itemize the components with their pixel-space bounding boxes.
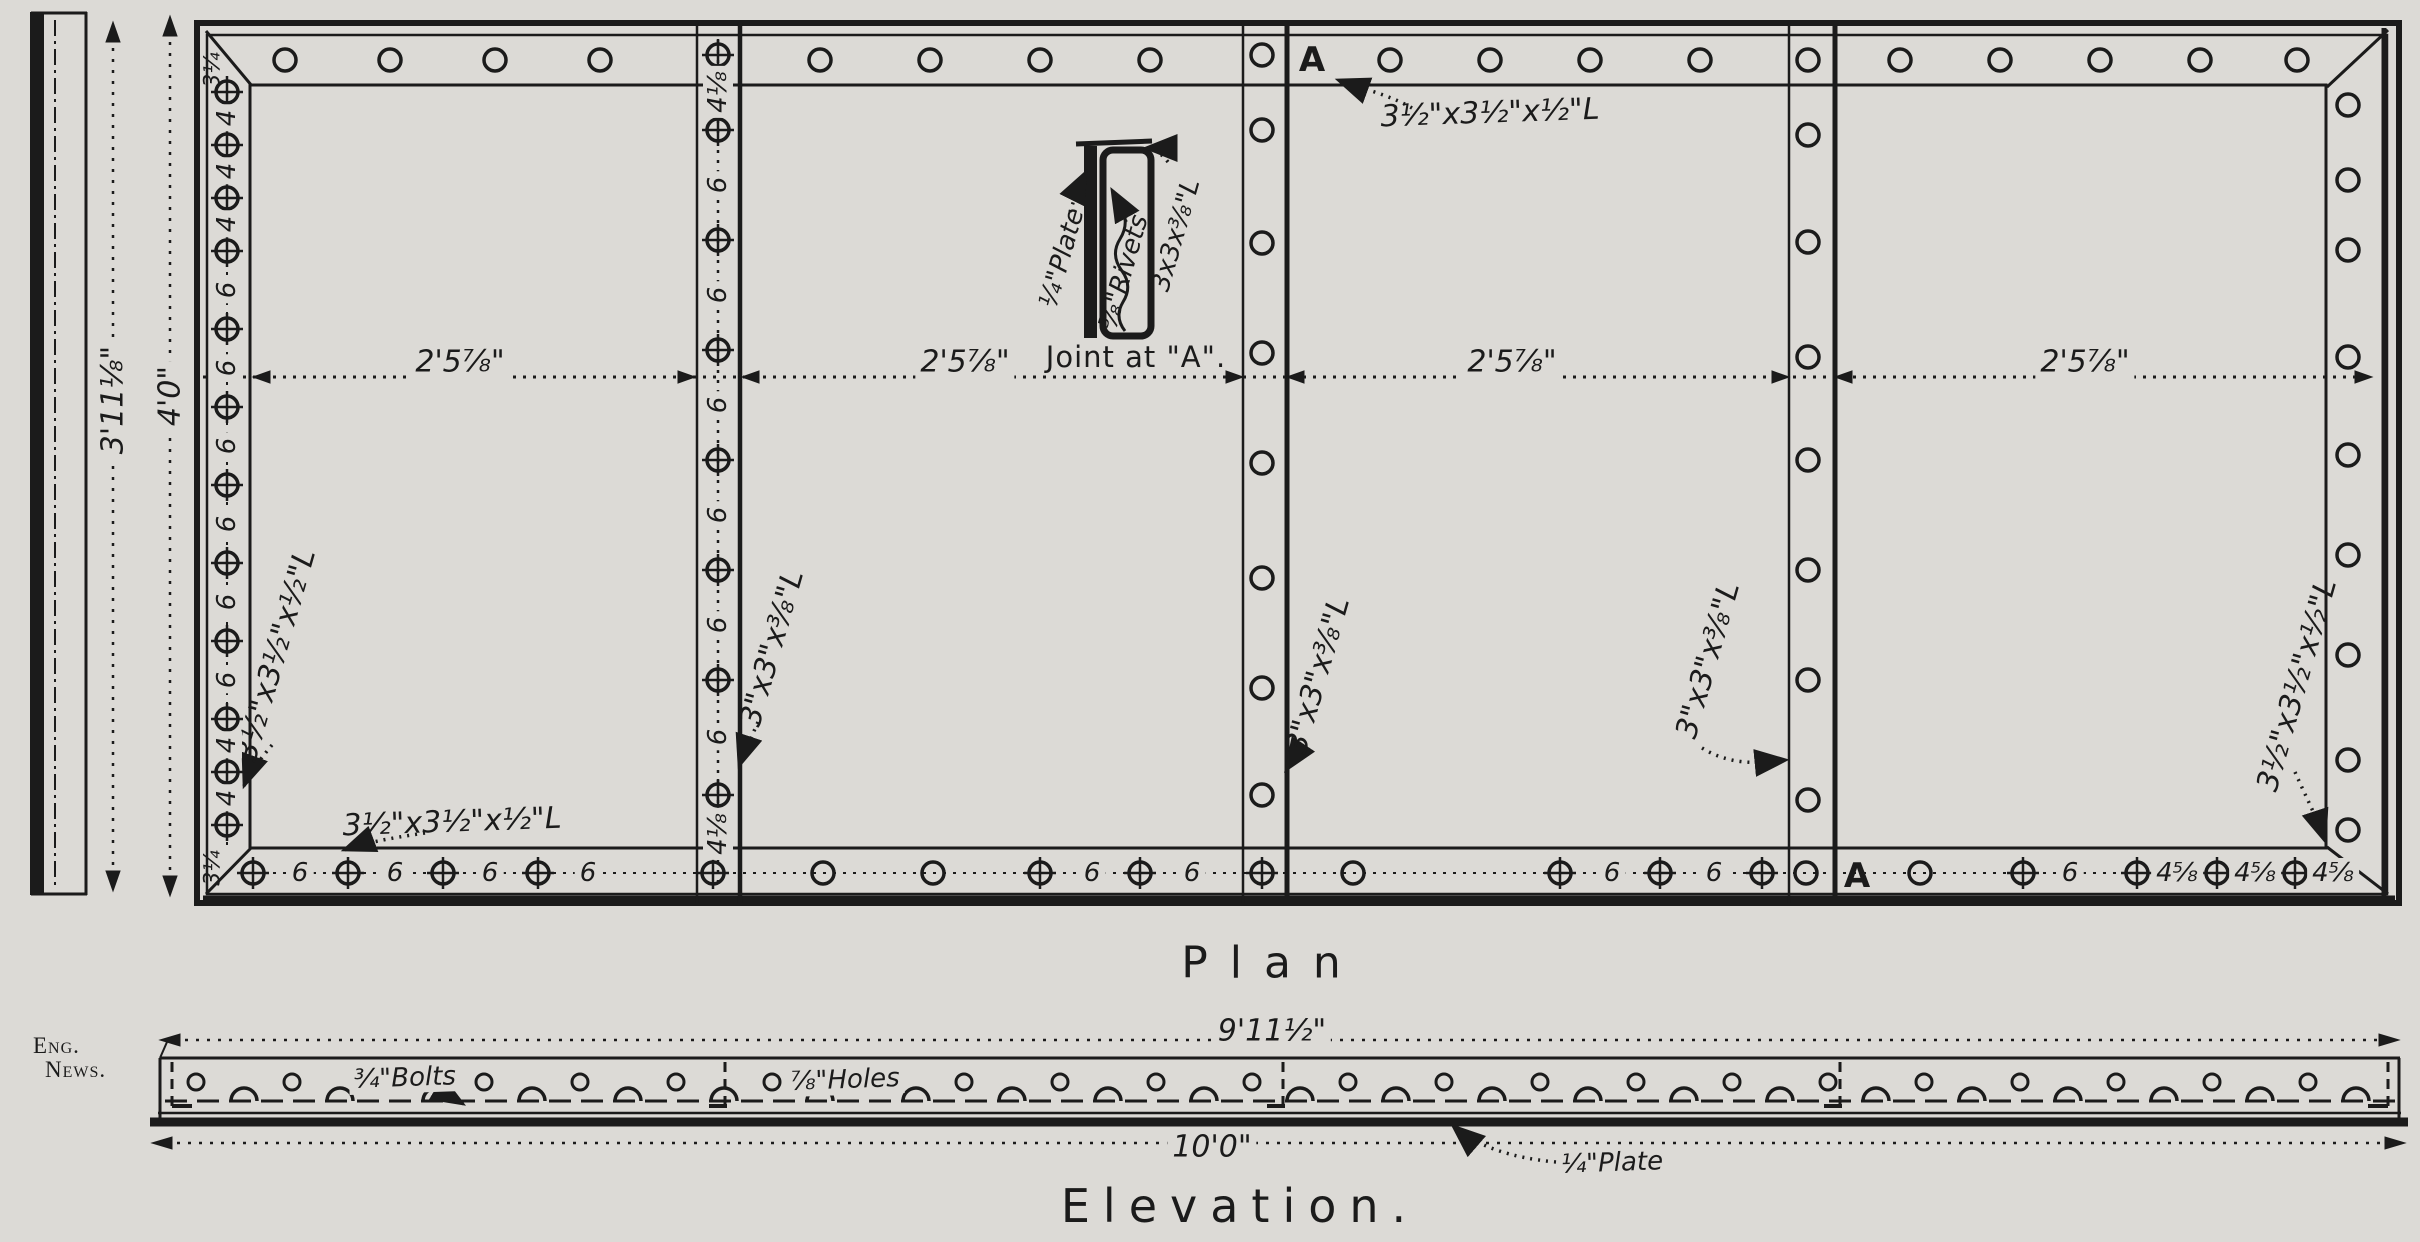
rivet-hole <box>2286 49 2308 71</box>
bolt-head-arc <box>1191 1088 1217 1101</box>
rivet-hole <box>589 49 611 71</box>
height-dimension-lines <box>106 16 177 896</box>
rivet-hole <box>919 49 941 71</box>
rivet-hole <box>274 49 296 71</box>
bolt-head-arc <box>1479 1088 1505 1101</box>
plan-outline <box>197 23 2399 903</box>
rivet-hole <box>2089 49 2111 71</box>
rivet-hole <box>1139 49 1161 71</box>
rivet-hole <box>2337 94 2359 116</box>
bolt-head <box>956 1074 972 1090</box>
rivet-hole <box>1251 567 1273 589</box>
plan-seams <box>697 23 1835 903</box>
bolt-head-arc <box>1383 1088 1409 1101</box>
bolt-head <box>764 1074 780 1090</box>
bolt-head <box>572 1074 588 1090</box>
elevation-outline <box>150 1042 2408 1122</box>
bolt-head <box>1436 1074 1452 1090</box>
bolt-head-arc <box>1767 1088 1793 1101</box>
bolt-head <box>476 1074 492 1090</box>
joint-detail-sketch <box>1076 141 1152 338</box>
rivet-hole <box>2337 169 2359 191</box>
rivet-hole <box>2337 749 2359 771</box>
bolt-head-arc <box>2343 1088 2369 1101</box>
rivet-gauge-lines <box>227 92 2340 873</box>
bolt-head-arc <box>231 1088 257 1101</box>
bolt-head-arc <box>1287 1088 1313 1101</box>
rivet-hole <box>1251 452 1273 474</box>
rivet-hole <box>1797 449 1819 471</box>
bolt-head-arc <box>1095 1088 1121 1101</box>
bolt-head <box>1724 1074 1740 1090</box>
bolt-head <box>284 1074 300 1090</box>
rivet-hole <box>1797 346 1819 368</box>
bolt-head <box>1532 1074 1548 1090</box>
bolt-head-arc <box>519 1088 545 1101</box>
rivet-hole <box>1251 44 1273 66</box>
rivet-hole <box>1251 677 1273 699</box>
bolt-head-arc <box>1863 1088 1889 1101</box>
rivet-hole <box>1251 232 1273 254</box>
rivet-hole <box>1989 49 2011 71</box>
rivet-hole <box>1797 669 1819 691</box>
rivet-hole <box>2337 544 2359 566</box>
rivet-hole <box>1251 784 1273 806</box>
rivet-hole <box>484 49 506 71</box>
rivet-hole <box>1251 342 1273 364</box>
bolt-head <box>2300 1074 2316 1090</box>
bolt-head <box>1052 1074 1068 1090</box>
rivet-hole <box>1797 559 1819 581</box>
bolt-head <box>188 1074 204 1090</box>
bolt-head <box>668 1074 684 1090</box>
bolt-head-arc <box>999 1088 1025 1101</box>
elevation-dimension-lines <box>152 1034 2405 1149</box>
rivet-hole <box>1379 49 1401 71</box>
bolt-head <box>2108 1074 2124 1090</box>
bolt-head-arc <box>1671 1088 1697 1101</box>
rivet-hole <box>1889 49 1911 71</box>
bolt-head-arc <box>2151 1088 2177 1101</box>
drawing-linework <box>0 0 2420 1242</box>
rivet-hole <box>1909 862 1931 884</box>
rivet-hole <box>2337 239 2359 261</box>
rivet-hole <box>379 49 401 71</box>
rivet-hole <box>1689 49 1711 71</box>
rivet-hole <box>1797 789 1819 811</box>
rivet-hole <box>2337 644 2359 666</box>
bolt-head-arc <box>327 1088 353 1101</box>
bolt-head-arc <box>1575 1088 1601 1101</box>
bolt-head-arc <box>1959 1088 1985 1101</box>
rivet-hole <box>1479 49 1501 71</box>
rivet-hole <box>809 49 831 71</box>
rivet-hole <box>1797 231 1819 253</box>
bolt-head <box>2012 1074 2028 1090</box>
engineering-drawing-sheet: 3'11⅛" 4'0" 2'5⅞" 2'5⅞" 2'5⅞" 2'5⅞" A A … <box>0 0 2420 1242</box>
bolt-head-arc <box>2247 1088 2273 1101</box>
rivet-hole <box>1029 49 1051 71</box>
bolt-head-arc <box>807 1088 833 1101</box>
bolt-head <box>1340 1074 1356 1090</box>
bolt-head <box>1148 1074 1164 1090</box>
bolt-head-arc <box>615 1088 641 1101</box>
rivet-hole <box>2337 444 2359 466</box>
bolt-head <box>1916 1074 1932 1090</box>
rivet-hole <box>1251 119 1273 141</box>
rivet-hole <box>2337 346 2359 368</box>
bolt-head <box>1244 1074 1260 1090</box>
rivet-hole <box>1797 49 1819 71</box>
rivet-hole <box>1579 49 1601 71</box>
bolt-head-arc <box>423 1088 449 1101</box>
bolt-head <box>1628 1074 1644 1090</box>
bolt-head-arc <box>903 1088 929 1101</box>
bolt-head <box>2204 1074 2220 1090</box>
rivet-hole <box>2337 819 2359 841</box>
bolt-head <box>1820 1074 1836 1090</box>
bolt-head-arc <box>2055 1088 2081 1101</box>
side-plate-strip <box>31 12 87 895</box>
rivet-marks-layer <box>188 39 2369 1101</box>
rivet-hole <box>1797 124 1819 146</box>
rivet-hole <box>2189 49 2211 71</box>
